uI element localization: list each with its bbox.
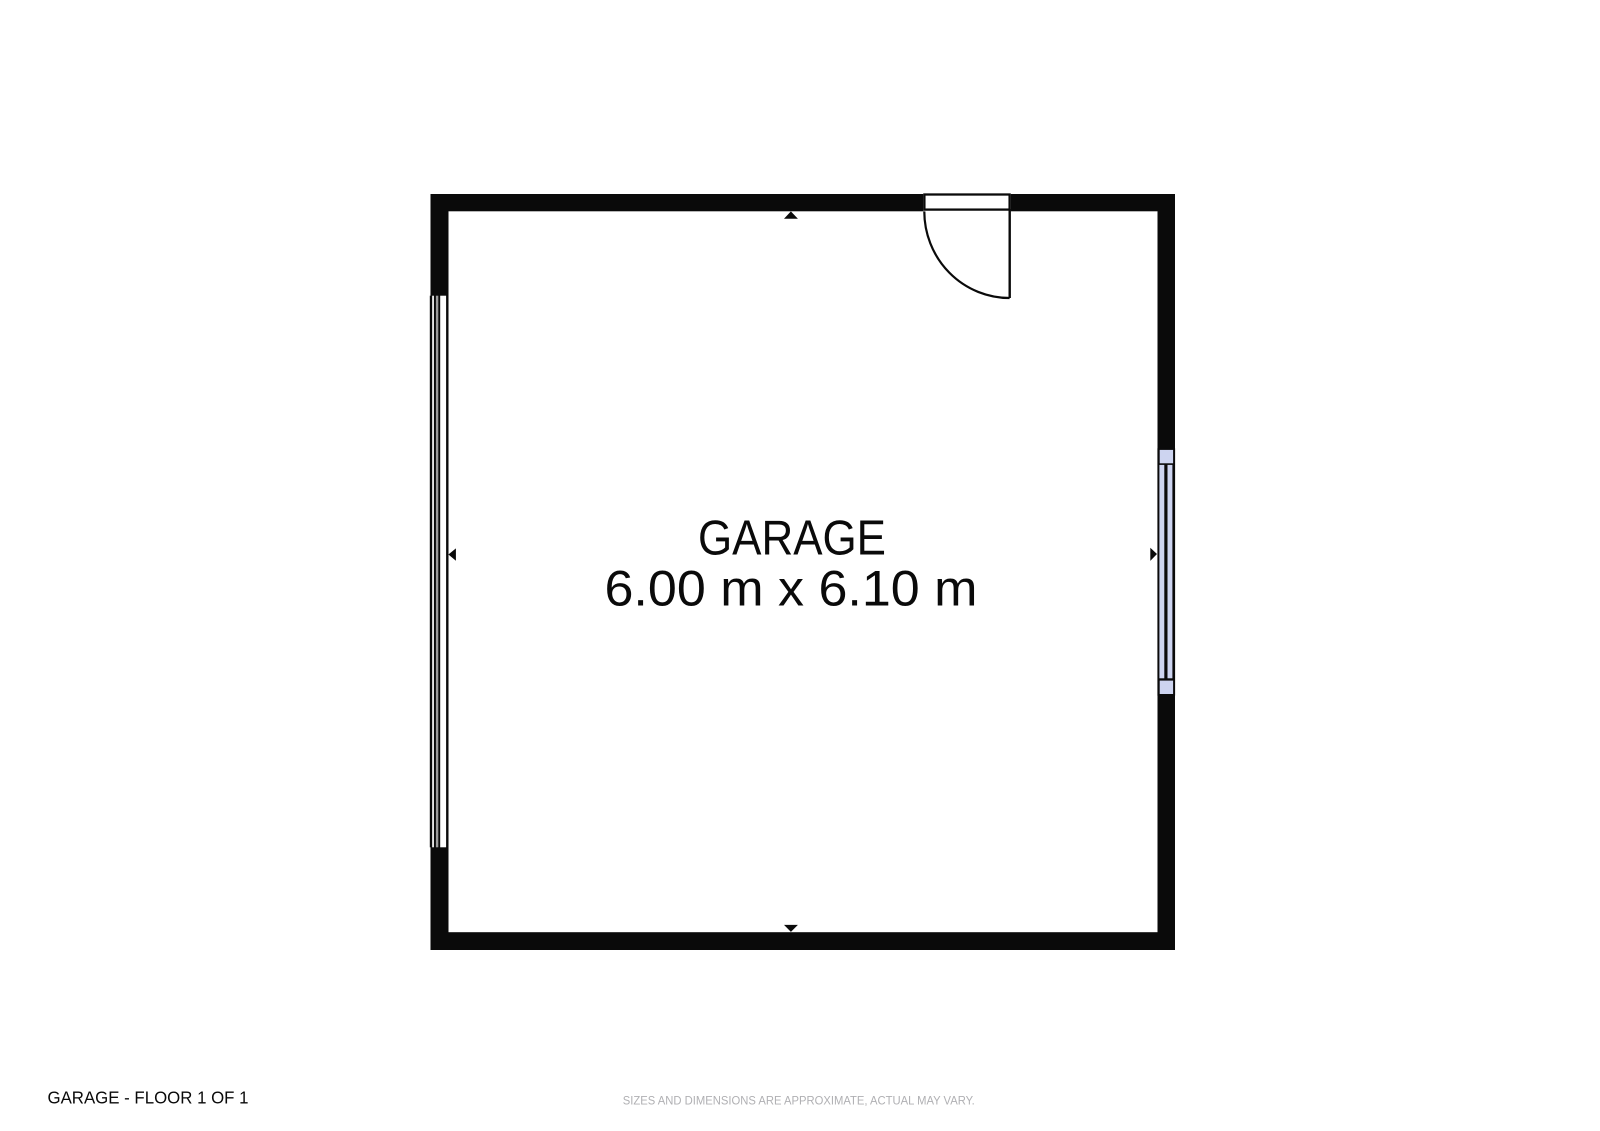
svg-text:GARAGE - FLOOR 1 OF 1: GARAGE - FLOOR 1 OF 1 xyxy=(48,1088,249,1108)
svg-text:SIZES AND DIMENSIONS ARE APPRO: SIZES AND DIMENSIONS ARE APPROXIMATE, AC… xyxy=(623,1094,975,1108)
svg-text:6.00 m x 6.10 m: 6.00 m x 6.10 m xyxy=(605,560,978,617)
svg-text:GARAGE: GARAGE xyxy=(698,512,886,566)
